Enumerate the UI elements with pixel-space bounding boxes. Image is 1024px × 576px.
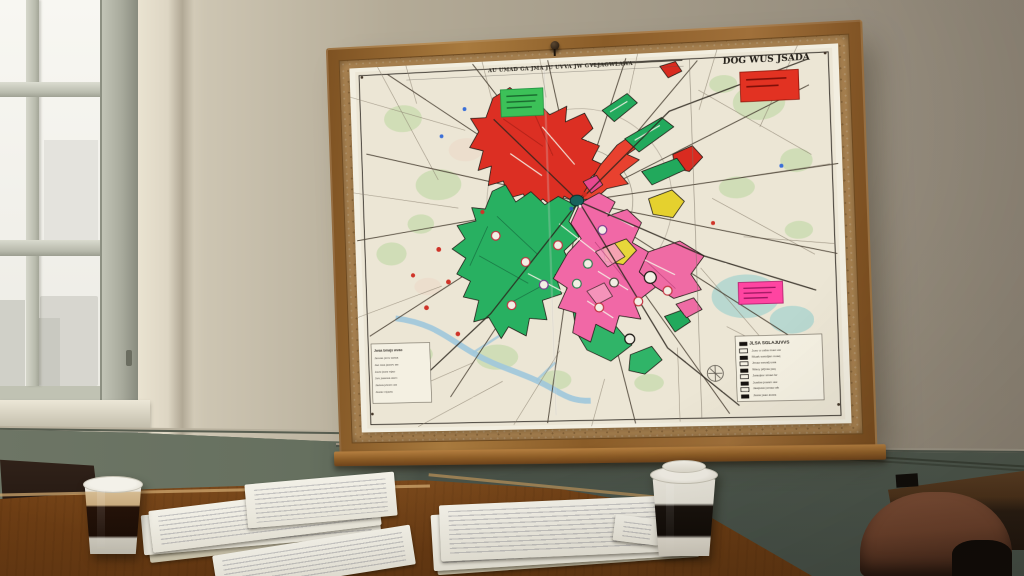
window-hinge (126, 350, 132, 366)
wall-corner-shadow (168, 0, 194, 460)
svg-text:JLSA SGLAJUVVS: JLSA SGLAJUVVS (749, 340, 789, 346)
mini-legend: Jwsa bmajs wvao Javvas jsmv awwa Jao swa… (371, 342, 432, 403)
svg-text:Jwsa bmajs wvao: Jwsa bmajs wvao (374, 348, 403, 353)
svg-text:Jaowa jvwsm aw: Jaowa jvwsm aw (375, 383, 398, 387)
svg-text:Javw jswa mjao: Javw jswa mjao (375, 369, 396, 373)
coffee-cup-right (650, 464, 718, 556)
window-muntin (0, 240, 102, 256)
note-green (500, 88, 543, 117)
svg-text:Muak swodjan nuaq: Muak swodjan nuaq (752, 354, 781, 359)
compass-symbol (707, 365, 724, 381)
window-muntin (0, 82, 102, 97)
cup-lid-dome (662, 460, 706, 473)
svg-text:Jswav mjaow: Jswav mjaow (375, 389, 393, 393)
svg-text:Jawjssw jsmao wk: Jawjssw jsmao wk (753, 386, 780, 391)
building-silhouette (44, 140, 98, 240)
window-panes (0, 0, 102, 386)
cup-highlight (97, 490, 105, 548)
svg-text:Wavy jsfjmw jwq: Wavy jsfjmw jwq (752, 367, 776, 372)
svg-text:Jwv jsawwa awm: Jwv jsawwa awm (375, 376, 398, 381)
cork-board: AU UMAD GA JMA JU UVVA JW GVLJAGWLAWA DO… (326, 20, 878, 457)
svg-text:Jmao swvalj uwa: Jmao swvalj uwa (752, 360, 777, 365)
meeting-room-photo: AU UMAD GA JMA JU UVVA JW GVLJAGWLAWA DO… (0, 0, 1024, 576)
svg-text:Javvas jsmv awwa: Javvas jsmv awwa (374, 356, 399, 361)
chair-right-shadow (952, 540, 1012, 576)
svg-text:Jusv o usba mao uw: Jusv o usba mao uw (752, 348, 782, 353)
building-silhouette (38, 318, 60, 386)
window-muntin (26, 0, 39, 386)
window-sash (100, 0, 138, 400)
svg-text:Jao swa jawwv aw: Jao swa jawwv aw (374, 362, 399, 367)
window (0, 0, 138, 434)
cup-highlight (666, 484, 674, 550)
svg-text:Jsww jsao avwa: Jsww jsao avwa (753, 393, 776, 398)
cup-body (83, 484, 143, 554)
svg-text:Juwbw jswsm aw: Juwbw jswsm aw (753, 380, 779, 385)
scale-bar (739, 342, 749, 399)
note-pink (738, 281, 783, 304)
coffee-cup-left (83, 476, 143, 554)
building-silhouette (0, 300, 25, 386)
note-red (740, 69, 800, 102)
cup-body (650, 476, 718, 556)
cup-rim (83, 476, 143, 493)
svg-text:Jwaojwv smao lw: Jwaojwv smao lw (752, 373, 778, 378)
city-map: AU UMAD GA JMA JU UVVA JW GVLJAGWLAWA DO… (349, 43, 851, 432)
cabinet-object (896, 473, 919, 488)
